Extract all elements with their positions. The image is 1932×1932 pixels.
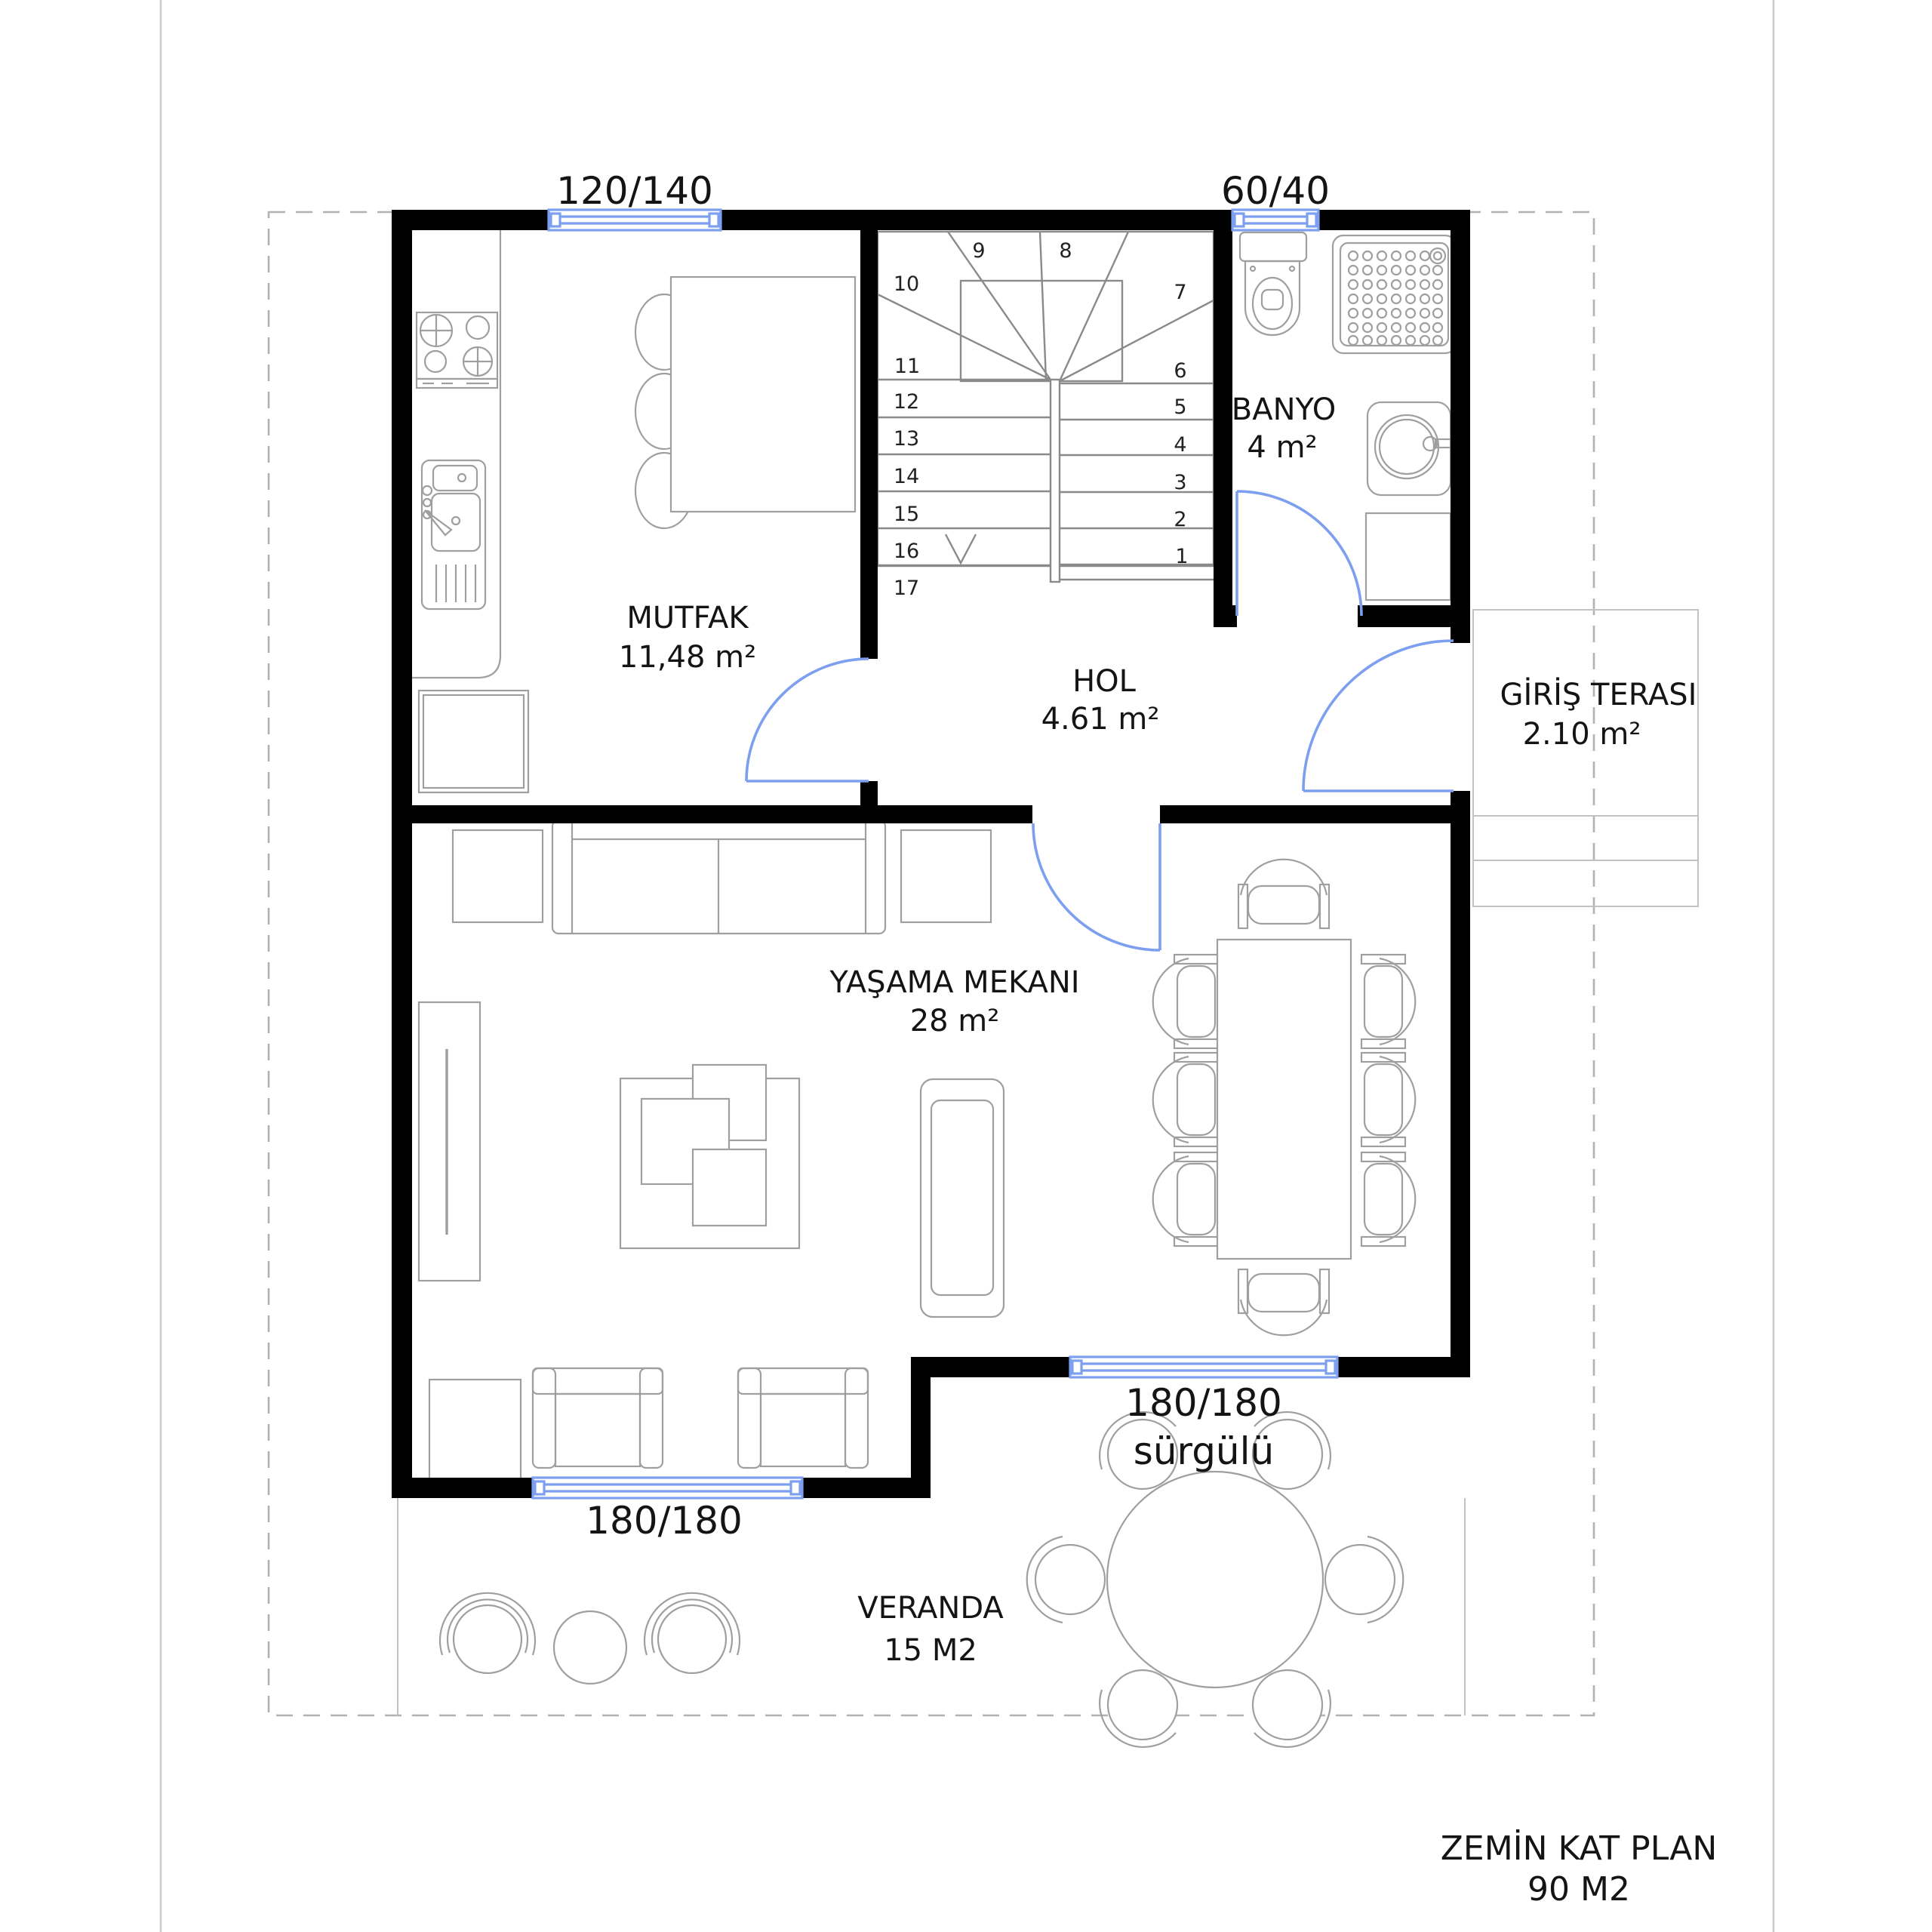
wall-bottom-right: [911, 1357, 1070, 1377]
terrace-step-1: [1473, 816, 1698, 860]
svg-text:16: 16: [894, 540, 919, 563]
window-kitchen-top: [549, 210, 721, 230]
floor-plan-sheet: 120/140 60/40 180/180 sürgülü 180/180 MU…: [0, 0, 1932, 1932]
veranda-tub-chair: [645, 1593, 740, 1673]
svg-text:10: 10: [894, 272, 919, 296]
round-table-chair: [1253, 1670, 1331, 1747]
window-bathroom-top: [1232, 210, 1318, 230]
svg-text:4: 4: [1174, 433, 1186, 457]
wall-step: [911, 1357, 931, 1498]
veranda-small-table: [554, 1611, 626, 1684]
svg-text:3: 3: [1174, 471, 1186, 494]
svg-text:1: 1: [1175, 545, 1188, 568]
svg-text:8: 8: [1059, 239, 1072, 263]
room-area-entry-terrace: 2.10 m²: [1523, 717, 1641, 752]
wall-bottom-right: [1337, 1357, 1470, 1377]
wall-living-top: [1160, 805, 1470, 823]
wall-living-top: [392, 805, 1032, 823]
svg-text:6: 6: [1174, 359, 1186, 383]
window-living-sliding: [1070, 1357, 1337, 1377]
floor-plan-drawing: 120/140 60/40 180/180 sürgülü 180/180 MU…: [0, 0, 1932, 1932]
svg-text:7: 7: [1174, 281, 1186, 304]
svg-text:9: 9: [972, 239, 985, 263]
room-label-veranda: VERANDA: [857, 1591, 1004, 1626]
room-label-kitchen: MUTFAK: [626, 601, 749, 635]
wall-kitchen-stairs: [860, 230, 878, 659]
wall-right: [1451, 210, 1470, 643]
window-label-bathroom: 60/40: [1221, 169, 1330, 213]
round-table-chair: [1325, 1537, 1403, 1623]
svg-text:13: 13: [894, 427, 919, 451]
room-label-hall: HOL: [1072, 664, 1137, 699]
wall-left: [392, 230, 412, 1498]
window-label-kitchen: 120/140: [556, 169, 713, 213]
terrace-step-2: [1473, 860, 1698, 906]
wall-top: [392, 210, 549, 230]
wall-top: [1318, 210, 1470, 230]
room-area-hall: 4.61 m²: [1041, 702, 1160, 737]
room-area-veranda: 15 M2: [884, 1633, 977, 1668]
room-label-bathroom: BANYO: [1232, 392, 1336, 427]
wall-bath-bottom: [1214, 605, 1237, 627]
svg-text:2: 2: [1174, 508, 1186, 531]
svg-text:12: 12: [894, 390, 919, 414]
svg-text:11: 11: [894, 355, 920, 378]
round-table-chair: [1027, 1537, 1105, 1623]
room-area-kitchen: 11,48 m²: [619, 640, 756, 675]
room-area-living: 28 m²: [910, 1004, 1000, 1038]
window-label-bottom: 180/180: [586, 1499, 743, 1543]
wall-top: [721, 210, 1232, 230]
wall-bath-left: [1214, 230, 1232, 605]
room-label-living: YAŞAMA MEKANI: [829, 965, 1079, 1000]
window-label-sliding-type: sürgülü: [1134, 1429, 1274, 1473]
terrace-slab: [1473, 610, 1698, 816]
svg-text:15: 15: [894, 503, 919, 526]
wall-right: [1451, 791, 1470, 1377]
svg-text:5: 5: [1174, 395, 1186, 419]
room-label-entry-terrace: GİRİŞ TERASI: [1500, 676, 1697, 712]
dining-table: [1217, 940, 1351, 1259]
round-table-chair: [1100, 1670, 1177, 1747]
window-living-bottom: [533, 1478, 802, 1498]
window-label-sliding-size: 180/180: [1125, 1381, 1282, 1425]
stair-divider: [1051, 380, 1060, 582]
plan-title-line2: 90 M2: [1527, 1870, 1630, 1909]
room-area-bathroom: 4 m²: [1247, 430, 1317, 465]
round-table: [1107, 1472, 1323, 1687]
plan-title-line1: ZEMİN KAT PLAN: [1441, 1829, 1717, 1868]
kitchen-table: [671, 277, 855, 512]
svg-text:14: 14: [894, 465, 919, 488]
wall-bottom-left: [392, 1478, 533, 1498]
veranda-tub-chair: [440, 1593, 535, 1673]
svg-text:17: 17: [894, 577, 919, 600]
wall-kitchen-stairs: [860, 781, 878, 805]
